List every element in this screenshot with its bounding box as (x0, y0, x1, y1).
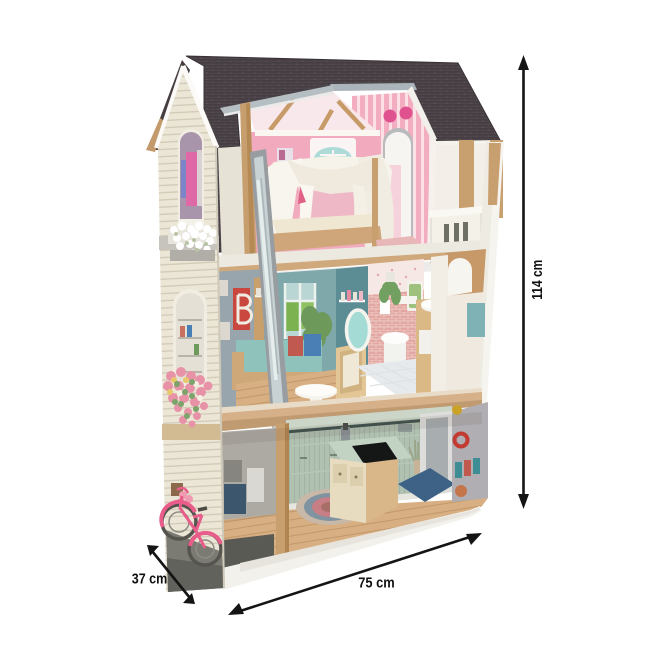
svg-text:75 cm: 75 cm (358, 575, 395, 592)
svg-text:37 cm: 37 cm (132, 571, 168, 588)
svg-text:114 cm: 114 cm (529, 260, 546, 300)
